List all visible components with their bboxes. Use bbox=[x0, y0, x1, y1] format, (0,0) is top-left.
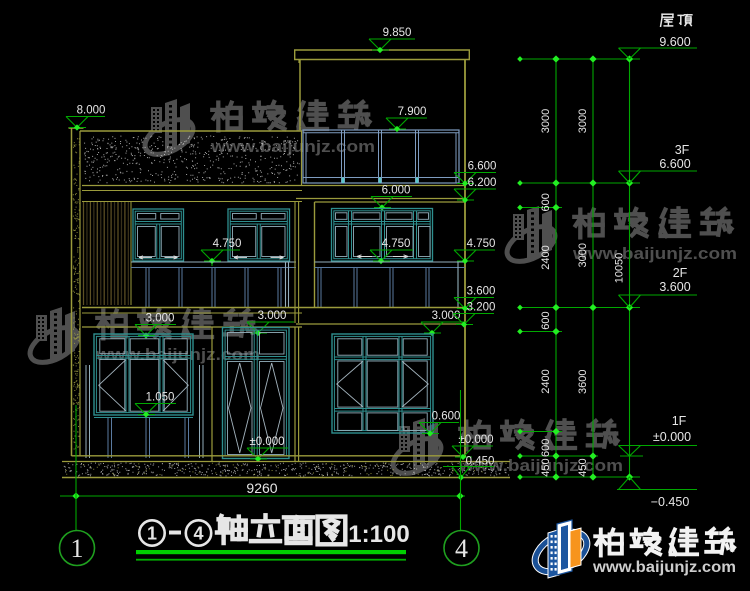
svg-text:6.200: 6.200 bbox=[468, 177, 497, 189]
svg-text:2400: 2400 bbox=[540, 245, 552, 269]
svg-text:9.600: 9.600 bbox=[659, 35, 690, 49]
svg-text:0.450: 0.450 bbox=[466, 456, 495, 468]
svg-text:3000: 3000 bbox=[577, 109, 589, 133]
svg-text:3F: 3F bbox=[675, 143, 690, 157]
svg-text:www.baijunjz.com: www.baijunjz.com bbox=[572, 245, 737, 263]
svg-text:450: 450 bbox=[577, 458, 589, 476]
svg-text:600: 600 bbox=[540, 311, 552, 329]
svg-text:1: 1 bbox=[71, 534, 84, 563]
svg-text:4.750: 4.750 bbox=[382, 238, 411, 250]
svg-text:10050: 10050 bbox=[614, 253, 626, 284]
svg-text:1: 1 bbox=[147, 524, 157, 544]
svg-text:9.850: 9.850 bbox=[383, 27, 412, 39]
svg-text:450: 450 bbox=[540, 458, 552, 476]
svg-text:3600: 3600 bbox=[577, 370, 589, 394]
svg-text:4.750: 4.750 bbox=[467, 238, 496, 250]
svg-text:±0.000: ±0.000 bbox=[653, 430, 691, 444]
svg-text:www.baijunjz.com: www.baijunjz.com bbox=[592, 559, 736, 576]
svg-text:9260: 9260 bbox=[246, 480, 277, 496]
svg-text:3.600: 3.600 bbox=[659, 280, 690, 294]
svg-text:2400: 2400 bbox=[540, 369, 552, 393]
svg-text:6.000: 6.000 bbox=[382, 185, 411, 197]
svg-text:600: 600 bbox=[540, 439, 552, 457]
svg-text:3000: 3000 bbox=[540, 109, 552, 133]
svg-text:±0.000: ±0.000 bbox=[249, 436, 284, 448]
svg-text:7.900: 7.900 bbox=[398, 106, 427, 118]
svg-text:4: 4 bbox=[455, 534, 468, 563]
svg-text:3.000: 3.000 bbox=[258, 310, 287, 322]
svg-text:1.050: 1.050 bbox=[146, 392, 175, 404]
svg-text:−0.450: −0.450 bbox=[651, 495, 690, 509]
svg-text:4: 4 bbox=[193, 524, 203, 544]
svg-text:3.000: 3.000 bbox=[146, 313, 175, 325]
svg-text:1:100: 1:100 bbox=[348, 521, 409, 548]
svg-text:8.000: 8.000 bbox=[77, 105, 106, 117]
svg-text:0.600: 0.600 bbox=[432, 411, 461, 423]
svg-text:600: 600 bbox=[540, 193, 552, 211]
svg-text:3000: 3000 bbox=[577, 243, 589, 267]
svg-text:3.600: 3.600 bbox=[467, 286, 496, 298]
svg-text:4.750: 4.750 bbox=[213, 238, 242, 250]
svg-text:3.200: 3.200 bbox=[467, 302, 496, 314]
svg-text:1F: 1F bbox=[672, 414, 687, 428]
svg-text:6.600: 6.600 bbox=[468, 161, 497, 173]
svg-text:www.baijunjz.com: www.baijunjz.com bbox=[210, 138, 375, 156]
svg-text:6.600: 6.600 bbox=[659, 157, 690, 171]
svg-text:±0.000: ±0.000 bbox=[458, 434, 493, 446]
svg-text:2F: 2F bbox=[673, 266, 688, 280]
